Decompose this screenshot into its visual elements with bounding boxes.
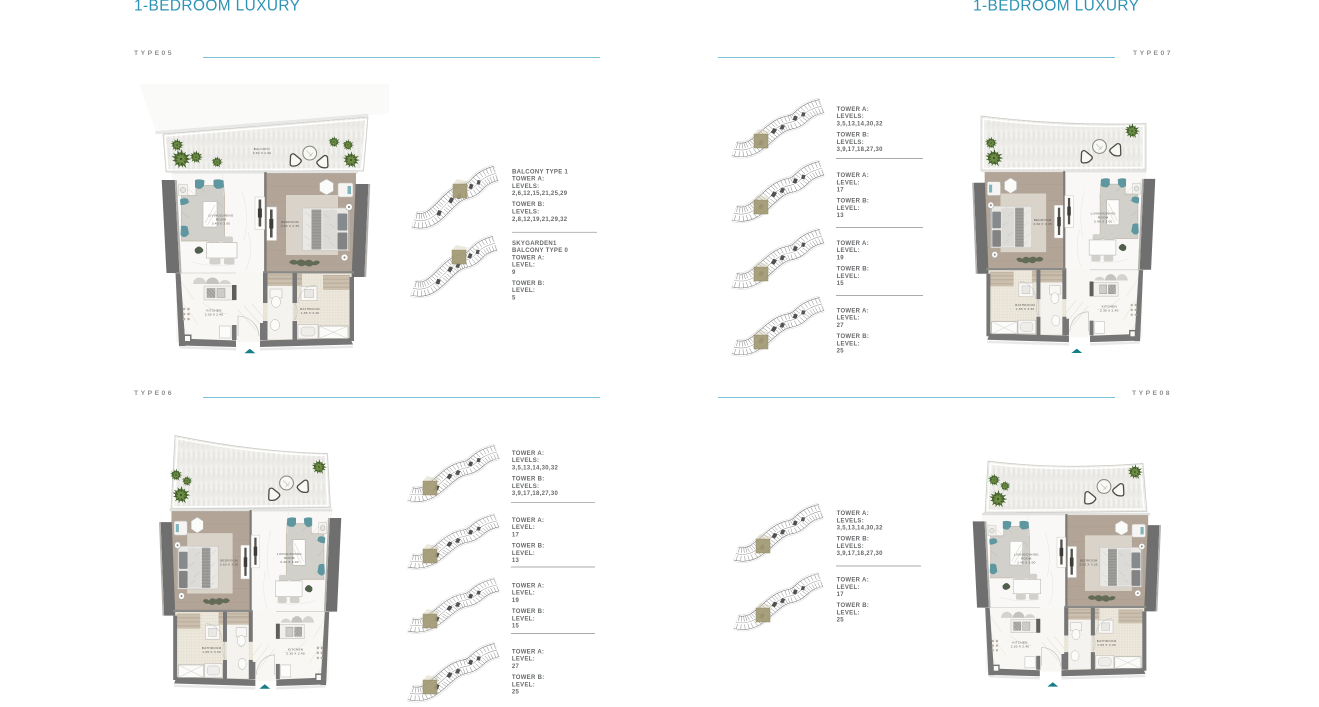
svg-text:SKYGARDEN1: SKYGARDEN1 <box>512 241 557 247</box>
svg-text:TYPE05: TYPE05 <box>134 50 174 57</box>
svg-text:TOWER B:: TOWER B: <box>512 544 545 550</box>
svg-text:TOWER A:: TOWER A: <box>837 578 869 584</box>
svg-text:TOWER B:: TOWER B: <box>837 603 870 609</box>
svg-text:17: 17 <box>837 188 845 194</box>
svg-text:27: 27 <box>512 664 520 670</box>
svg-text:LEVELS:: LEVELS: <box>512 484 539 490</box>
svg-text:3,5,13,14,30,32: 3,5,13,14,30,32 <box>512 466 559 472</box>
svg-text:25: 25 <box>837 349 845 355</box>
svg-text:TOWER A:: TOWER A: <box>837 308 869 314</box>
svg-text:LEVEL:: LEVEL: <box>512 288 535 294</box>
svg-text:2.30 X 2.40: 2.30 X 2.40 <box>1100 308 1119 312</box>
svg-text:LEVEL:: LEVEL: <box>512 263 535 269</box>
svg-text:TYPE07: TYPE07 <box>1133 50 1173 57</box>
svg-text:17: 17 <box>512 533 520 539</box>
svg-text:TOWER A:: TOWER A: <box>512 255 544 261</box>
svg-text:TOWER A:: TOWER A: <box>512 451 544 457</box>
svg-text:3.60 X 3.35: 3.60 X 3.35 <box>1079 562 1098 566</box>
svg-text:TOWER B:: TOWER B: <box>512 609 545 615</box>
svg-text:3.60 X 3.35: 3.60 X 3.35 <box>281 224 300 228</box>
svg-text:3.60 X 3.35: 3.60 X 3.35 <box>1033 222 1052 226</box>
svg-text:TOWER B:: TOWER B: <box>837 199 870 205</box>
svg-text:1-BEDROOM LUXURY: 1-BEDROOM LUXURY <box>973 0 1139 15</box>
svg-text:3.40 X 3.00: 3.40 X 3.00 <box>1017 560 1036 564</box>
svg-text:13: 13 <box>837 213 845 219</box>
svg-text:LEVELS:: LEVELS: <box>512 184 539 190</box>
svg-text:15: 15 <box>837 281 845 287</box>
svg-text:2.30 X 2.40: 2.30 X 2.40 <box>286 651 305 655</box>
svg-text:15: 15 <box>512 624 520 630</box>
svg-text:17: 17 <box>837 592 845 598</box>
svg-text:LEVEL:: LEVEL: <box>512 551 535 557</box>
svg-text:TOWER B:: TOWER B: <box>512 202 545 208</box>
svg-text:LEVELS:: LEVELS: <box>837 140 864 146</box>
svg-text:1-BEDROOM LUXURY: 1-BEDROOM LUXURY <box>134 0 300 15</box>
svg-text:TYPE06: TYPE06 <box>134 390 174 397</box>
svg-text:LEVELS:: LEVELS: <box>512 458 539 464</box>
svg-text:25: 25 <box>837 618 845 624</box>
svg-text:3,9,17,18,27,30: 3,9,17,18,27,30 <box>512 491 559 497</box>
svg-text:9.60 X 2.00: 9.60 X 2.00 <box>253 151 272 155</box>
svg-text:19: 19 <box>512 598 520 604</box>
svg-text:1.65 X 3.30: 1.65 X 3.30 <box>1016 307 1035 311</box>
svg-text:TOWER A:: TOWER A: <box>512 649 544 655</box>
svg-text:LEVEL:: LEVEL: <box>512 591 535 597</box>
svg-text:2,6,12,15,21,25,29: 2,6,12,15,21,25,29 <box>512 191 568 197</box>
svg-text:3.40 X 3.00: 3.40 X 3.00 <box>212 222 231 226</box>
svg-text:LEVELS:: LEVELS: <box>837 518 864 524</box>
svg-text:9: 9 <box>512 270 516 276</box>
svg-text:3,9,17,18,27,30: 3,9,17,18,27,30 <box>837 551 884 557</box>
svg-text:TOWER B:: TOWER B: <box>512 675 545 681</box>
svg-text:TOWER B:: TOWER B: <box>837 267 870 273</box>
svg-text:TOWER A:: TOWER A: <box>837 173 869 179</box>
svg-text:2.30 X 2.40: 2.30 X 2.40 <box>205 313 224 317</box>
svg-text:LEVEL:: LEVEL: <box>512 657 535 663</box>
svg-text:LEVEL:: LEVEL: <box>837 206 860 212</box>
svg-text:LEVELS:: LEVELS: <box>837 544 864 550</box>
svg-text:3,5,13,14,30,32: 3,5,13,14,30,32 <box>837 526 884 532</box>
svg-text:LEVEL:: LEVEL: <box>512 682 535 688</box>
svg-text:LEVEL:: LEVEL: <box>837 274 860 280</box>
svg-text:TOWER B:: TOWER B: <box>837 334 870 340</box>
svg-text:3,9,17,18,27,30: 3,9,17,18,27,30 <box>837 147 884 153</box>
svg-text:2.30 X 2.40: 2.30 X 2.40 <box>1011 644 1030 648</box>
svg-text:BALCONY TYPE 1: BALCONY TYPE 1 <box>512 169 568 175</box>
svg-text:LEVEL:: LEVEL: <box>512 616 535 622</box>
svg-text:LEVELS:: LEVELS: <box>512 210 539 216</box>
svg-text:3,5,13,14,30,32: 3,5,13,14,30,32 <box>837 122 884 128</box>
svg-text:TOWER B:: TOWER B: <box>837 133 870 139</box>
svg-text:LEVEL:: LEVEL: <box>837 180 860 186</box>
svg-text:13: 13 <box>512 558 520 564</box>
svg-text:1.65 X 3.30: 1.65 X 3.30 <box>301 311 320 315</box>
svg-text:TOWER A:: TOWER A: <box>837 511 869 517</box>
svg-text:TOWER A:: TOWER A: <box>512 177 544 183</box>
svg-text:1.65 X 3.30: 1.65 X 3.30 <box>1097 643 1116 647</box>
svg-text:3.40 X 3.00: 3.40 X 3.00 <box>280 560 299 564</box>
svg-text:TOWER A:: TOWER A: <box>837 107 869 113</box>
svg-text:TOWER B:: TOWER B: <box>512 281 545 287</box>
svg-text:TOWER A:: TOWER A: <box>512 518 544 524</box>
svg-text:5: 5 <box>512 296 516 302</box>
svg-text:3.40 X 3.00: 3.40 X 3.00 <box>1094 220 1113 224</box>
svg-text:1.65 X 3.30: 1.65 X 3.30 <box>202 650 221 654</box>
svg-text:LEVEL:: LEVEL: <box>837 585 860 591</box>
svg-text:TOWER B:: TOWER B: <box>837 537 870 543</box>
svg-text:TOWER B:: TOWER B: <box>512 477 545 483</box>
svg-text:LEVELS:: LEVELS: <box>837 114 864 120</box>
svg-text:TYPE08: TYPE08 <box>1132 390 1172 397</box>
svg-text:2,8,12,19,21,29,32: 2,8,12,19,21,29,32 <box>512 217 568 223</box>
svg-text:3.60 X 3.35: 3.60 X 3.35 <box>220 562 239 566</box>
svg-text:LEVEL:: LEVEL: <box>837 341 860 347</box>
svg-text:27: 27 <box>837 323 845 329</box>
svg-text:TOWER A:: TOWER A: <box>837 241 869 247</box>
svg-text:LEVEL:: LEVEL: <box>512 525 535 531</box>
svg-text:BALCONY TYPE 0: BALCONY TYPE 0 <box>512 248 568 254</box>
svg-text:LEVEL:: LEVEL: <box>837 610 860 616</box>
svg-text:19: 19 <box>837 256 845 262</box>
svg-text:LEVEL:: LEVEL: <box>837 316 860 322</box>
svg-text:LEVEL:: LEVEL: <box>837 248 860 254</box>
svg-text:TOWER A:: TOWER A: <box>512 583 544 589</box>
svg-text:25: 25 <box>512 690 520 696</box>
